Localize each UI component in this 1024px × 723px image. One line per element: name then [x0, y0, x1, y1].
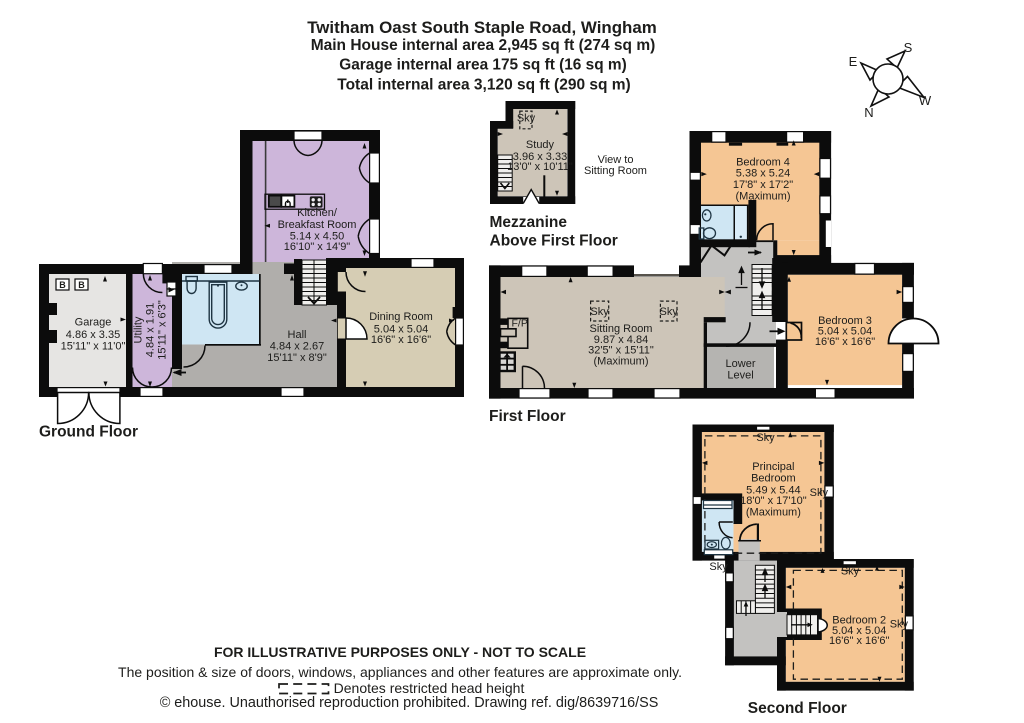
- svg-text:FOR ILLUSTRATIVE PURPOSES ONLY: FOR ILLUSTRATIVE PURPOSES ONLY - NOT TO …: [214, 644, 586, 660]
- svg-text:4.84 x 1.91: 4.84 x 1.91: [145, 303, 157, 357]
- svg-text:16'6" x 16'6": 16'6" x 16'6": [829, 635, 889, 647]
- svg-text:Twitham Oast South Staple Road: Twitham Oast South Staple Road, Wingham: [307, 18, 657, 37]
- svg-text:W: W: [919, 93, 932, 108]
- svg-text:Dining Room: Dining Room: [369, 311, 433, 323]
- svg-text:Sky: Sky: [709, 561, 728, 573]
- svg-text:Sitting Room: Sitting Room: [584, 165, 647, 177]
- svg-text:Above First Floor: Above First Floor: [490, 233, 618, 250]
- svg-text:Lower: Lower: [726, 358, 756, 370]
- svg-text:Main House internal area 2,945: Main House internal area 2,945 sq ft (27…: [311, 37, 656, 54]
- svg-text:Utility: Utility: [133, 316, 145, 343]
- svg-text:15'11" x 11'0": 15'11" x 11'0": [61, 341, 126, 353]
- svg-text:Sky: Sky: [517, 113, 536, 125]
- svg-text:Garage internal area 175 sq ft: Garage internal area 175 sq ft (16 sq m): [339, 57, 626, 74]
- svg-text:Total internal area 3,120 sq f: Total internal area 3,120 sq ft (290 sq …: [337, 77, 630, 94]
- svg-text:16'6" x 16'6": 16'6" x 16'6": [815, 336, 875, 348]
- svg-text:B: B: [59, 280, 66, 290]
- svg-text:Ground Floor: Ground Floor: [39, 424, 138, 441]
- svg-text:Sky: Sky: [890, 619, 909, 631]
- svg-text:B: B: [78, 280, 85, 290]
- svg-text:15'11" x 8'9": 15'11" x 8'9": [267, 352, 327, 364]
- svg-text:© ehouse. Unauthorised reprodu: © ehouse. Unauthorised reproduction proh…: [160, 695, 659, 711]
- svg-text:Level: Level: [727, 370, 753, 382]
- svg-text:Hall: Hall: [288, 329, 307, 341]
- svg-text:Sky: Sky: [841, 566, 860, 578]
- svg-text:Study: Study: [526, 139, 555, 151]
- svg-text:S: S: [904, 40, 913, 55]
- svg-text:4.84 x 2.67: 4.84 x 2.67: [270, 341, 324, 353]
- svg-text:(Maximum): (Maximum): [746, 507, 801, 519]
- svg-text:Mezzanine: Mezzanine: [490, 214, 568, 231]
- svg-text:(Maximum): (Maximum): [594, 356, 649, 368]
- svg-text:The position & size of doors,: The position & size of doors, windows, a…: [118, 664, 682, 680]
- svg-text:First Floor: First Floor: [489, 408, 566, 425]
- svg-text:Denotes restricted head height: Denotes restricted head height: [334, 680, 525, 696]
- svg-text:Garage: Garage: [75, 317, 112, 329]
- svg-text:Sky: Sky: [590, 306, 609, 318]
- svg-text:18'0" x 17'10": 18'0" x 17'10": [740, 495, 807, 507]
- svg-text:5.38 x 5.24: 5.38 x 5.24: [736, 168, 790, 180]
- svg-text:17'8" x 17'2": 17'8" x 17'2": [733, 179, 793, 191]
- svg-text:Bedroom: Bedroom: [751, 473, 796, 485]
- svg-text:16'10" x 14'9": 16'10" x 14'9": [284, 241, 351, 253]
- svg-text:N: N: [864, 105, 873, 120]
- svg-text:Sky: Sky: [756, 432, 775, 444]
- svg-text:13'0" x 10'11": 13'0" x 10'11": [507, 161, 573, 173]
- svg-text:Second Floor: Second Floor: [748, 700, 847, 717]
- svg-text:15'11" x 6'3": 15'11" x 6'3": [157, 300, 169, 360]
- svg-text:Breakfast Room: Breakfast Room: [278, 219, 357, 231]
- svg-text:16'6" x 16'6": 16'6" x 16'6": [371, 334, 431, 346]
- svg-text:Sky: Sky: [810, 487, 829, 499]
- svg-text:4.86 x 3.35: 4.86 x 3.35: [66, 329, 120, 341]
- svg-text:Kitchen/: Kitchen/: [297, 207, 338, 219]
- svg-text:F/P: F/P: [512, 318, 528, 330]
- svg-text:Sky: Sky: [660, 306, 679, 318]
- svg-text:Principal: Principal: [752, 461, 794, 473]
- svg-text:E: E: [849, 54, 858, 69]
- svg-text:(Maximum): (Maximum): [736, 191, 791, 203]
